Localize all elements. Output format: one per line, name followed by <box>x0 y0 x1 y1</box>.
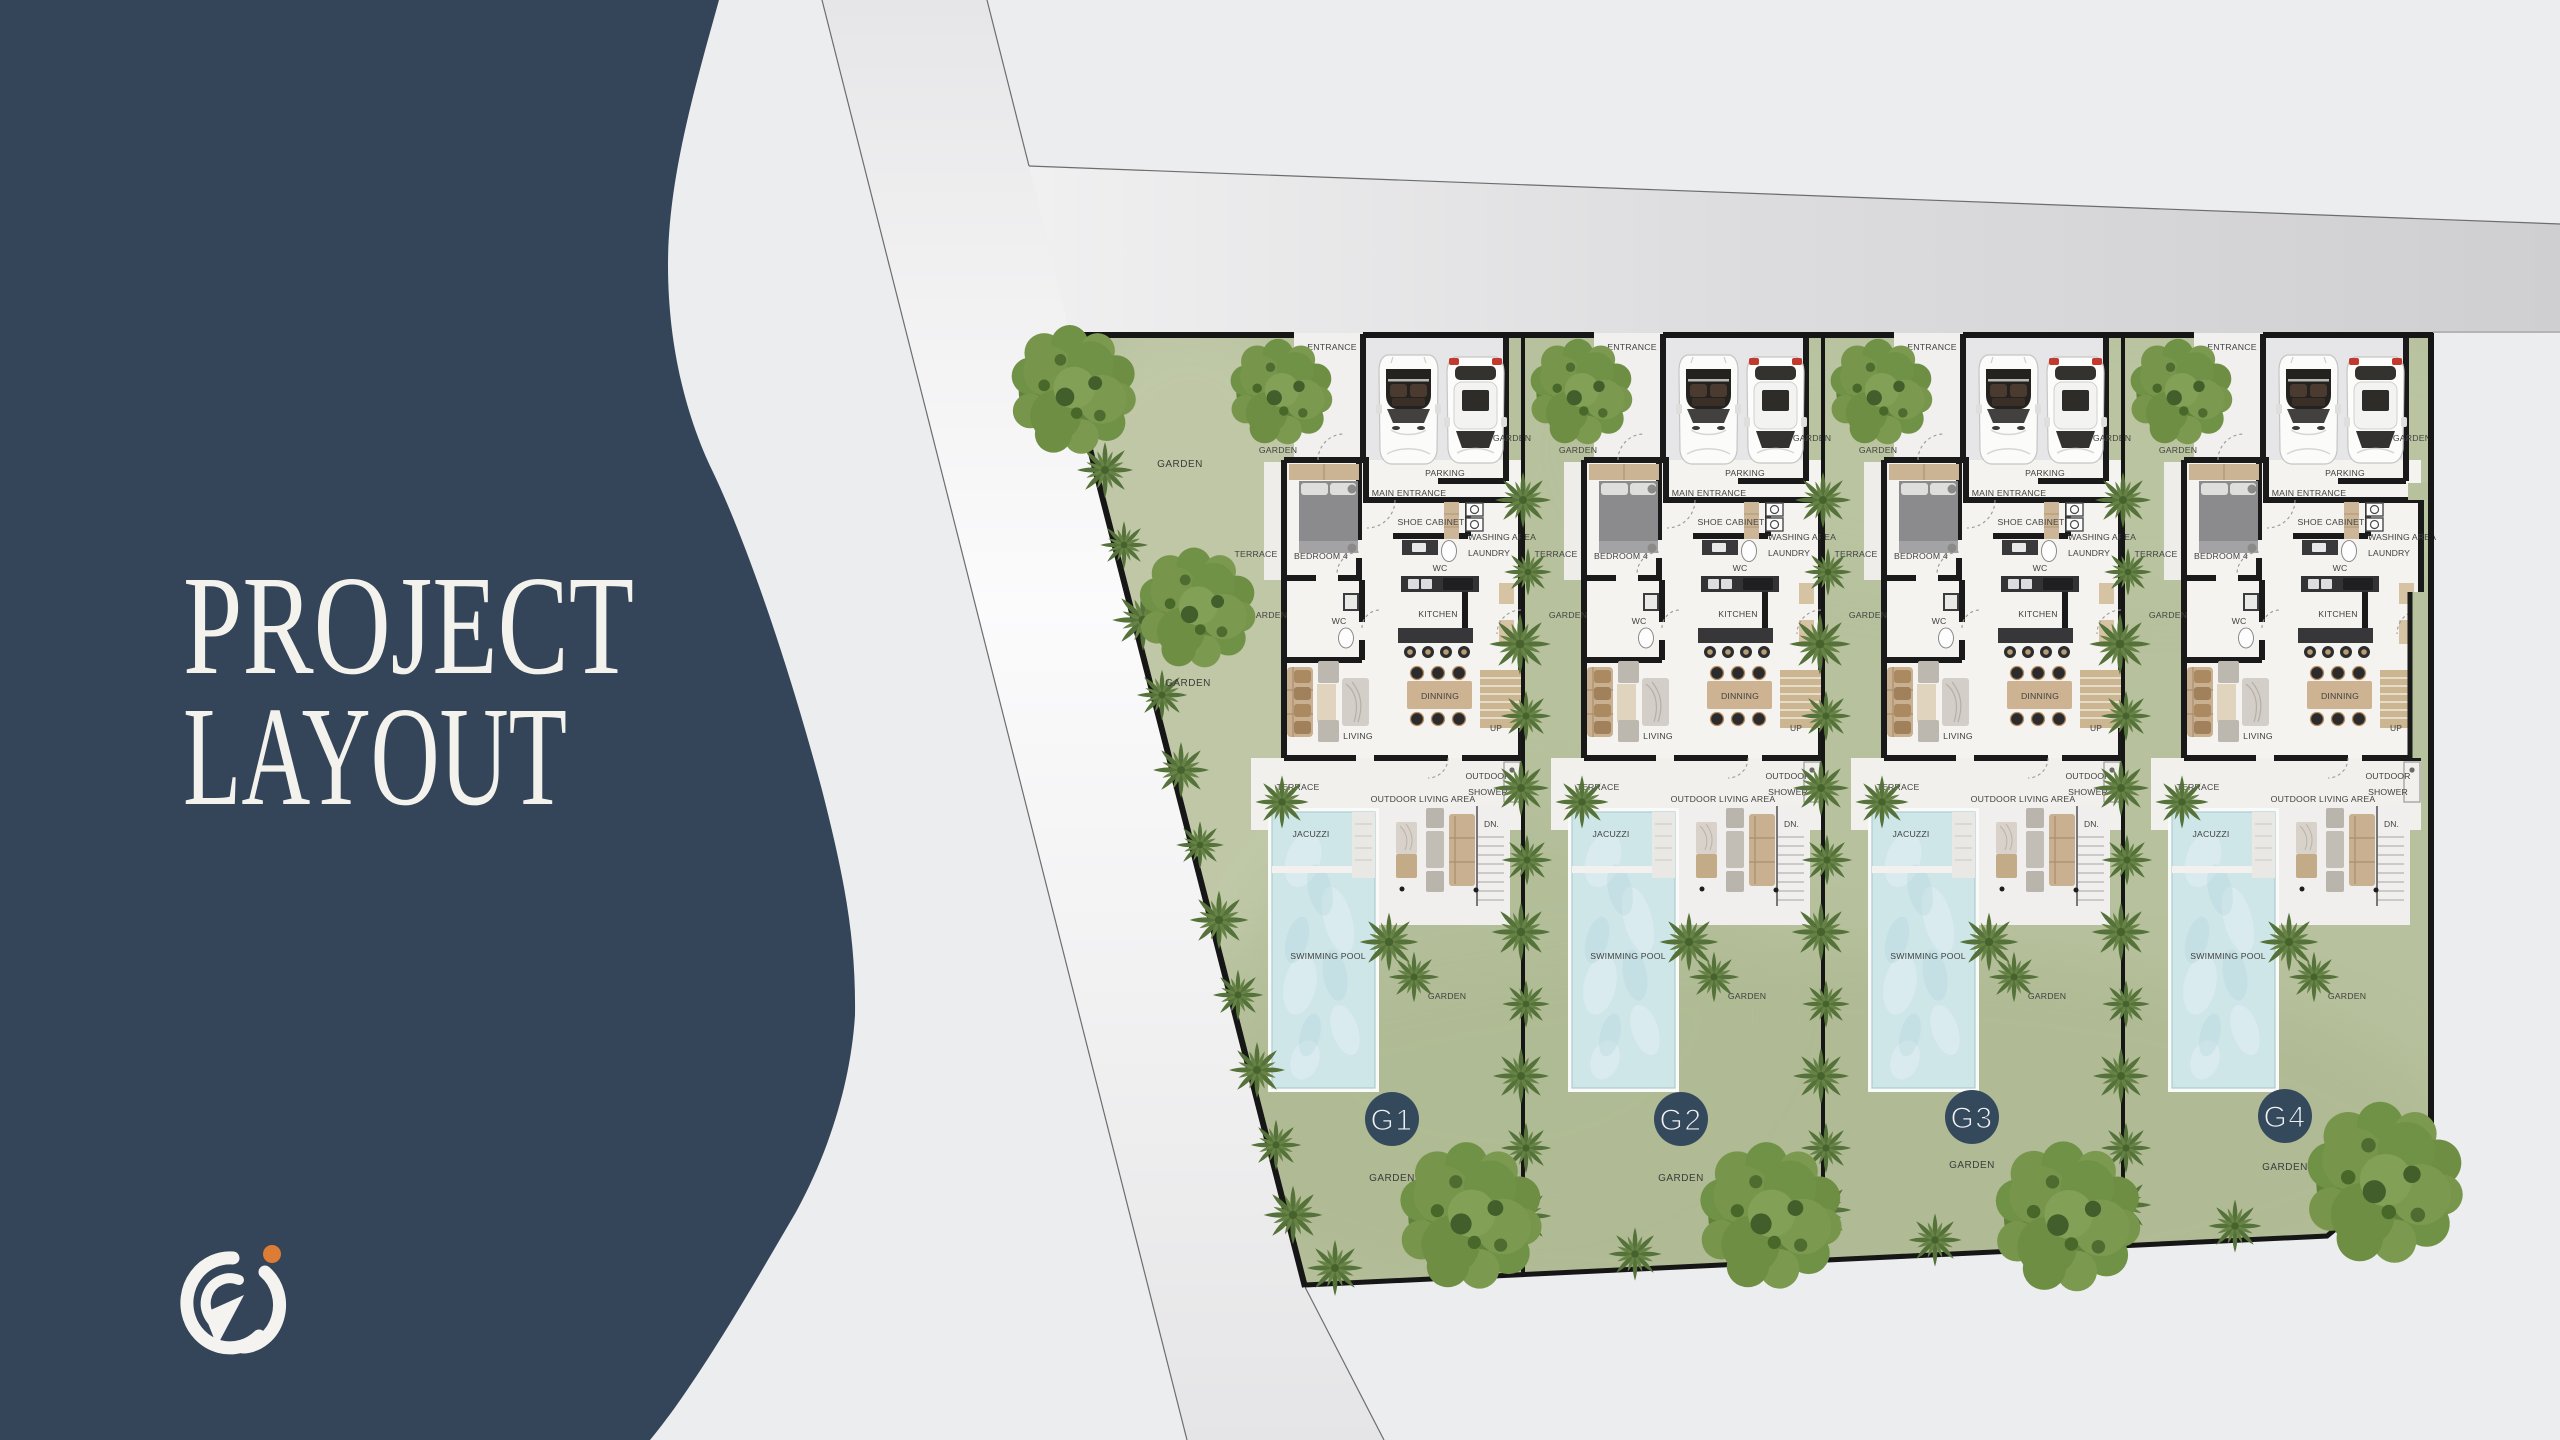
svg-text:G2: G2 <box>1659 1104 1702 1137</box>
svg-text:GARDEN: GARDEN <box>1157 459 1203 470</box>
svg-text:GARDEN: GARDEN <box>1949 1160 1995 1171</box>
svg-text:GARDEN: GARDEN <box>1165 678 1211 689</box>
svg-text:G1: G1 <box>1370 1104 1413 1137</box>
svg-text:GARDEN: GARDEN <box>1369 1173 1415 1184</box>
svg-text:GARDEN: GARDEN <box>2262 1162 2308 1173</box>
svg-text:LAYOUT: LAYOUT <box>183 677 567 835</box>
svg-text:G4: G4 <box>2263 1101 2306 1134</box>
svg-text:G3: G3 <box>1950 1102 1993 1135</box>
svg-text:GARDEN: GARDEN <box>1658 1173 1704 1184</box>
